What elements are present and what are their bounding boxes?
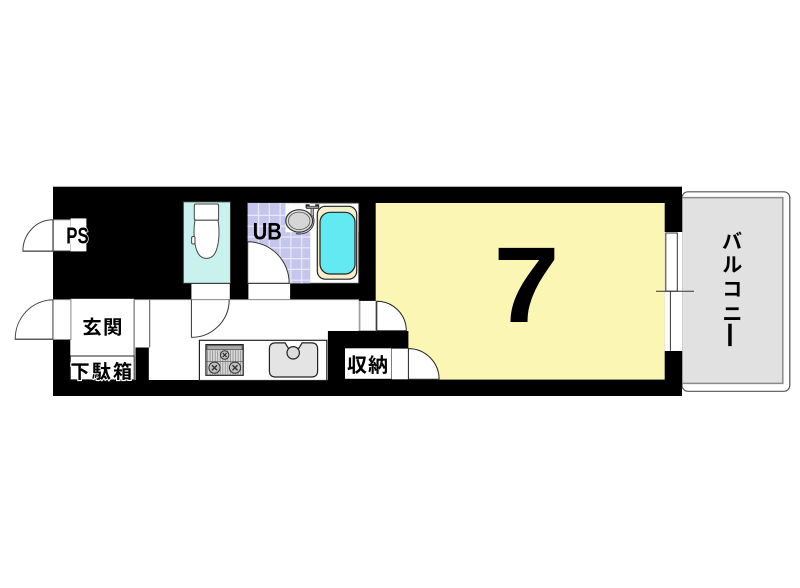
- svg-text:UB: UB: [253, 218, 282, 245]
- svg-text:PS: PS: [66, 224, 88, 249]
- svg-text:7: 7: [494, 225, 560, 346]
